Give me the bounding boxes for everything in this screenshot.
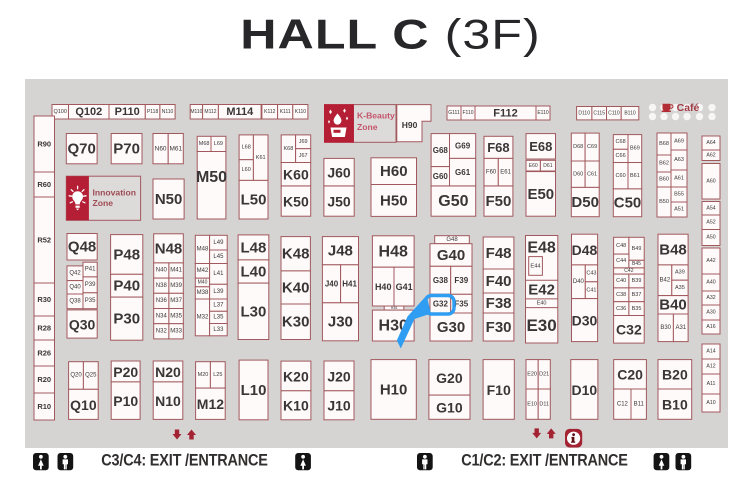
svg-text:L37: L37 bbox=[213, 302, 224, 308]
svg-text:B48: B48 bbox=[659, 242, 687, 259]
svg-text:N50: N50 bbox=[155, 191, 183, 208]
svg-text:A52: A52 bbox=[706, 219, 715, 225]
svg-text:D21: D21 bbox=[539, 372, 549, 378]
svg-text:F112: F112 bbox=[493, 107, 517, 119]
svg-text:K40: K40 bbox=[282, 279, 310, 296]
svg-text:E44: E44 bbox=[530, 263, 541, 269]
svg-text:M12: M12 bbox=[197, 396, 224, 412]
svg-text:Q30: Q30 bbox=[69, 316, 96, 332]
svg-text:B68: B68 bbox=[659, 141, 669, 147]
svg-text:K48: K48 bbox=[282, 246, 310, 263]
svg-text:C48: C48 bbox=[616, 243, 626, 249]
svg-text:N36: N36 bbox=[156, 298, 168, 304]
svg-text:E68: E68 bbox=[529, 139, 552, 154]
svg-text:A12: A12 bbox=[706, 364, 715, 370]
svg-text:K-Beauty: K-Beauty bbox=[357, 111, 395, 121]
svg-text:M68: M68 bbox=[199, 141, 210, 147]
svg-text:E110: E110 bbox=[537, 110, 549, 116]
svg-text:C3/C4: EXIT /ENTRANCE: C3/C4: EXIT /ENTRANCE bbox=[101, 452, 268, 470]
svg-text:P39: P39 bbox=[85, 282, 96, 288]
svg-text:Q102: Q102 bbox=[75, 106, 102, 118]
svg-text:H60: H60 bbox=[380, 163, 408, 180]
svg-text:L48: L48 bbox=[240, 239, 266, 256]
svg-text:J67: J67 bbox=[299, 153, 308, 159]
svg-text:L45: L45 bbox=[213, 254, 224, 260]
svg-text:M42: M42 bbox=[197, 268, 209, 274]
svg-text:C68: C68 bbox=[616, 139, 626, 145]
svg-text:P41: P41 bbox=[85, 267, 96, 273]
svg-text:A40: A40 bbox=[706, 280, 715, 286]
svg-text:H10: H10 bbox=[380, 381, 408, 398]
svg-text:D60: D60 bbox=[573, 171, 583, 177]
svg-text:F38: F38 bbox=[486, 295, 512, 312]
svg-text:F48: F48 bbox=[486, 245, 512, 262]
svg-text:L10: L10 bbox=[241, 382, 267, 399]
svg-text:N32: N32 bbox=[156, 329, 168, 335]
svg-text:B10: B10 bbox=[662, 397, 688, 413]
svg-text:C115: C115 bbox=[593, 110, 605, 116]
svg-text:G10: G10 bbox=[436, 400, 463, 416]
svg-text:M39: M39 bbox=[170, 283, 182, 289]
svg-text:B69: B69 bbox=[630, 146, 640, 152]
svg-text:Innovation: Innovation bbox=[93, 188, 136, 198]
svg-text:A16: A16 bbox=[706, 324, 715, 330]
svg-text:L39: L39 bbox=[213, 289, 224, 295]
svg-text:E40: E40 bbox=[537, 300, 547, 306]
svg-text:G69: G69 bbox=[455, 142, 471, 151]
svg-text:Q100: Q100 bbox=[53, 109, 66, 115]
svg-text:M33: M33 bbox=[170, 329, 182, 335]
svg-text:G41: G41 bbox=[396, 282, 413, 292]
svg-text:C110: C110 bbox=[608, 110, 620, 116]
svg-text:M48: M48 bbox=[197, 247, 209, 253]
svg-text:E60: E60 bbox=[529, 163, 538, 169]
svg-text:P118: P118 bbox=[147, 109, 159, 115]
svg-text:B60: B60 bbox=[659, 177, 669, 183]
svg-text:K10: K10 bbox=[283, 398, 309, 414]
svg-text:G38: G38 bbox=[433, 276, 449, 285]
svg-text:G50: G50 bbox=[438, 193, 468, 210]
svg-text:K30: K30 bbox=[282, 314, 310, 331]
svg-text:P110: P110 bbox=[115, 106, 140, 118]
svg-text:B37: B37 bbox=[632, 292, 642, 298]
svg-text:H50: H50 bbox=[380, 192, 408, 209]
svg-text:B49: B49 bbox=[632, 246, 642, 252]
svg-text:A63: A63 bbox=[674, 157, 684, 163]
svg-text:J20: J20 bbox=[327, 368, 351, 384]
svg-text:A11: A11 bbox=[707, 381, 716, 387]
svg-text:E50: E50 bbox=[527, 186, 554, 203]
svg-text:C41: C41 bbox=[586, 287, 596, 293]
svg-text:L68: L68 bbox=[242, 145, 251, 151]
svg-text:L49: L49 bbox=[213, 240, 224, 246]
svg-text:C20: C20 bbox=[617, 367, 643, 383]
svg-text:B61: B61 bbox=[630, 173, 640, 179]
svg-text:A69: A69 bbox=[674, 139, 684, 145]
svg-text:L60: L60 bbox=[242, 167, 251, 173]
svg-text:K68: K68 bbox=[284, 146, 294, 152]
svg-text:F50: F50 bbox=[485, 193, 511, 210]
svg-text:C32: C32 bbox=[616, 322, 642, 338]
svg-text:M112: M112 bbox=[204, 109, 216, 115]
svg-text:G40: G40 bbox=[437, 247, 465, 264]
svg-text:G32: G32 bbox=[433, 299, 449, 308]
svg-text:N48: N48 bbox=[155, 240, 183, 257]
svg-text:M37: M37 bbox=[170, 298, 182, 304]
svg-text:F40: F40 bbox=[486, 273, 512, 290]
svg-text:P10: P10 bbox=[113, 393, 138, 409]
svg-text:E42: E42 bbox=[528, 281, 555, 298]
svg-text:A61: A61 bbox=[674, 176, 684, 182]
svg-text:M61: M61 bbox=[169, 145, 182, 152]
svg-text:H41: H41 bbox=[342, 280, 357, 289]
svg-text:N34: N34 bbox=[156, 313, 168, 319]
svg-text:M32: M32 bbox=[197, 315, 209, 321]
svg-text:M110: M110 bbox=[190, 109, 202, 115]
svg-text:A30: A30 bbox=[706, 310, 715, 316]
svg-text:C50: C50 bbox=[614, 195, 642, 212]
svg-text:H48: H48 bbox=[379, 244, 408, 261]
svg-text:L41: L41 bbox=[213, 271, 224, 277]
svg-text:M50: M50 bbox=[196, 169, 227, 186]
svg-text:G60: G60 bbox=[433, 172, 449, 181]
svg-text:A51: A51 bbox=[674, 207, 684, 213]
svg-text:C40: C40 bbox=[616, 278, 626, 284]
svg-text:F10: F10 bbox=[487, 382, 511, 398]
svg-text:A50: A50 bbox=[706, 235, 715, 241]
svg-text:Q70: Q70 bbox=[68, 141, 96, 158]
svg-text:R30: R30 bbox=[37, 295, 51, 304]
svg-text:C61: C61 bbox=[587, 171, 597, 177]
svg-text:Q20: Q20 bbox=[70, 373, 82, 379]
svg-text:D11: D11 bbox=[539, 401, 549, 407]
svg-text:C60: C60 bbox=[616, 173, 626, 179]
svg-text:Q42: Q42 bbox=[69, 270, 81, 276]
svg-text:C1/C2: EXIT /ENTRANCE: C1/C2: EXIT /ENTRANCE bbox=[461, 452, 628, 470]
svg-text:C36: C36 bbox=[616, 306, 626, 312]
svg-text:Q25: Q25 bbox=[85, 373, 97, 379]
svg-text:E30: E30 bbox=[526, 316, 556, 335]
svg-text:K110: K110 bbox=[295, 109, 307, 115]
svg-text:H36: H36 bbox=[391, 306, 397, 310]
svg-text:R20: R20 bbox=[37, 375, 51, 384]
svg-text:J50: J50 bbox=[327, 194, 351, 210]
svg-text:Café: Café bbox=[677, 102, 700, 114]
svg-text:Q10: Q10 bbox=[70, 397, 97, 413]
svg-text:B50: B50 bbox=[659, 199, 669, 205]
svg-text:G30: G30 bbox=[437, 319, 465, 336]
svg-text:D30: D30 bbox=[572, 313, 598, 329]
svg-text:K60: K60 bbox=[283, 167, 309, 183]
svg-text:Q38: Q38 bbox=[69, 299, 81, 305]
svg-text:L33: L33 bbox=[213, 327, 224, 333]
svg-text:R60: R60 bbox=[37, 180, 51, 189]
svg-text:E48: E48 bbox=[527, 240, 556, 257]
svg-text:B62: B62 bbox=[659, 161, 669, 167]
svg-text:M38: M38 bbox=[197, 290, 209, 296]
svg-text:P70: P70 bbox=[113, 141, 140, 158]
svg-text:G111: G111 bbox=[448, 110, 460, 116]
svg-text:K111: K111 bbox=[280, 109, 291, 115]
svg-text:Zone: Zone bbox=[357, 122, 378, 132]
svg-text:N20: N20 bbox=[155, 364, 181, 380]
svg-text:G68: G68 bbox=[433, 146, 449, 155]
svg-text:B30: B30 bbox=[660, 325, 671, 331]
svg-text:K50: K50 bbox=[283, 194, 309, 210]
svg-text:B40: B40 bbox=[659, 297, 687, 314]
svg-text:D68: D68 bbox=[573, 144, 583, 150]
svg-text:F68: F68 bbox=[487, 140, 509, 155]
svg-text:R10: R10 bbox=[37, 402, 51, 411]
svg-text:N40: N40 bbox=[156, 268, 168, 274]
svg-text:B42: B42 bbox=[660, 277, 671, 283]
svg-text:L35: L35 bbox=[213, 315, 224, 321]
svg-text:C42: C42 bbox=[624, 268, 633, 274]
svg-text:M20: M20 bbox=[198, 372, 209, 378]
svg-text:Q40: Q40 bbox=[69, 285, 81, 291]
svg-text:A14: A14 bbox=[706, 349, 715, 355]
svg-text:D61: D61 bbox=[543, 163, 552, 169]
svg-text:B20: B20 bbox=[662, 367, 688, 383]
svg-text:C12: C12 bbox=[617, 401, 629, 407]
svg-text:HALL C (3F): HALL C (3F) bbox=[240, 11, 540, 58]
svg-text:L40: L40 bbox=[240, 263, 266, 280]
svg-text:F60: F60 bbox=[486, 169, 497, 175]
svg-text:P40: P40 bbox=[113, 278, 140, 295]
svg-text:Zone: Zone bbox=[93, 198, 114, 208]
svg-text:P30: P30 bbox=[113, 311, 140, 328]
svg-text:A42: A42 bbox=[706, 258, 715, 264]
svg-text:D50: D50 bbox=[571, 194, 599, 211]
svg-text:B35: B35 bbox=[632, 306, 642, 312]
svg-text:J48: J48 bbox=[328, 243, 353, 260]
svg-text:C69: C69 bbox=[587, 144, 597, 150]
svg-text:J30: J30 bbox=[328, 314, 353, 331]
svg-text:H90: H90 bbox=[402, 120, 418, 130]
svg-text:F35: F35 bbox=[454, 299, 468, 308]
svg-text:J69: J69 bbox=[299, 139, 308, 145]
svg-text:B11: B11 bbox=[634, 401, 645, 407]
svg-text:B55: B55 bbox=[674, 192, 684, 198]
svg-text:F110: F110 bbox=[462, 110, 473, 116]
svg-text:C43: C43 bbox=[586, 271, 596, 277]
svg-text:G61: G61 bbox=[455, 168, 471, 177]
svg-text:B110: B110 bbox=[624, 110, 636, 116]
svg-text:P48: P48 bbox=[113, 246, 140, 263]
svg-text:J40: J40 bbox=[325, 280, 339, 289]
svg-text:A62: A62 bbox=[706, 152, 715, 158]
svg-text:N38: N38 bbox=[156, 283, 168, 289]
svg-text:E61: E61 bbox=[500, 169, 511, 175]
svg-text:A39: A39 bbox=[675, 270, 685, 276]
svg-text:A54: A54 bbox=[706, 205, 715, 211]
svg-text:J60: J60 bbox=[327, 165, 351, 181]
svg-text:D40: D40 bbox=[573, 279, 585, 285]
svg-text:M41: M41 bbox=[170, 268, 182, 274]
svg-text:F30: F30 bbox=[486, 319, 512, 336]
svg-text:E20: E20 bbox=[527, 372, 537, 378]
svg-text:L30: L30 bbox=[240, 303, 266, 320]
svg-text:A64: A64 bbox=[706, 140, 715, 146]
svg-text:A35: A35 bbox=[675, 285, 685, 291]
svg-text:Q48: Q48 bbox=[68, 239, 96, 256]
svg-text:R28: R28 bbox=[37, 324, 51, 333]
svg-text:A10: A10 bbox=[706, 400, 715, 406]
svg-text:N10: N10 bbox=[155, 393, 181, 409]
svg-text:A31: A31 bbox=[675, 325, 686, 331]
svg-text:P35: P35 bbox=[85, 298, 96, 304]
svg-text:K61: K61 bbox=[256, 155, 266, 161]
svg-text:J10: J10 bbox=[327, 398, 351, 414]
svg-text:C44: C44 bbox=[616, 258, 626, 264]
svg-text:R52: R52 bbox=[37, 236, 51, 245]
svg-text:M35: M35 bbox=[170, 313, 182, 319]
svg-text:E10: E10 bbox=[527, 401, 537, 407]
svg-text:L25: L25 bbox=[213, 372, 222, 378]
svg-text:R90: R90 bbox=[37, 140, 51, 149]
svg-text:M40: M40 bbox=[198, 280, 208, 286]
svg-text:D48: D48 bbox=[572, 242, 598, 258]
svg-text:A32: A32 bbox=[706, 295, 715, 301]
svg-text:R26: R26 bbox=[37, 349, 51, 358]
svg-text:G48: G48 bbox=[446, 237, 458, 243]
svg-text:F39: F39 bbox=[454, 276, 468, 285]
svg-text:L50: L50 bbox=[241, 192, 267, 209]
svg-text:P20: P20 bbox=[113, 364, 138, 380]
svg-text:G20: G20 bbox=[436, 370, 463, 386]
svg-text:C66: C66 bbox=[616, 153, 626, 159]
svg-text:K20: K20 bbox=[283, 368, 309, 384]
svg-text:N60: N60 bbox=[155, 145, 167, 152]
svg-text:H40: H40 bbox=[375, 282, 392, 292]
svg-text:M114: M114 bbox=[226, 106, 254, 118]
svg-text:A60: A60 bbox=[706, 178, 715, 184]
svg-text:N110: N110 bbox=[162, 109, 174, 115]
svg-text:D110: D110 bbox=[578, 110, 590, 116]
svg-text:B45: B45 bbox=[632, 261, 641, 267]
svg-text:D10: D10 bbox=[571, 382, 597, 398]
svg-text:B39: B39 bbox=[632, 278, 642, 284]
svg-text:C38: C38 bbox=[616, 292, 626, 298]
svg-text:K112: K112 bbox=[264, 109, 276, 115]
svg-text:L69: L69 bbox=[214, 141, 223, 147]
